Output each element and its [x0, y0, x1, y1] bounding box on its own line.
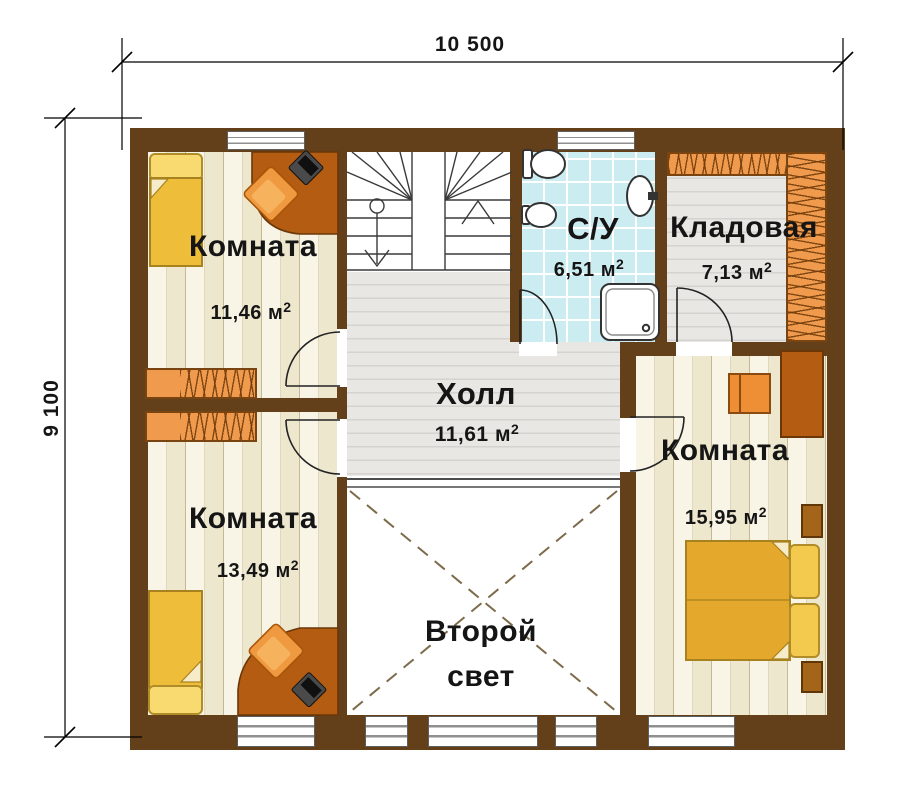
area-value: 15,95 м [685, 507, 759, 529]
door-bathroom [520, 290, 557, 344]
area-sup: 2 [511, 421, 519, 437]
area-sup: 2 [759, 504, 767, 520]
area-value: 11,61 м [435, 423, 511, 446]
area-value: 6,51 м [554, 259, 616, 281]
door-bottom-left-room [286, 420, 340, 474]
shower-tray-icon [601, 284, 659, 340]
area-value: 7,13 м [702, 262, 764, 284]
dimension-top-label: 10 500 [435, 33, 505, 57]
staircase [347, 152, 512, 270]
area-sup: 2 [291, 557, 299, 573]
blanket-fold [772, 642, 789, 659]
room-label-bedroom-right: Комната [661, 434, 789, 468]
area-sup: 2 [616, 256, 624, 272]
stair-start-circle [370, 199, 384, 213]
door-top-left-room [286, 332, 340, 386]
area-value: 11,46 м [210, 302, 283, 324]
stair-up-arrow [462, 201, 494, 224]
void-label-line1: Второй [425, 609, 537, 654]
room-label-bedroom-top-left: Комната [189, 230, 317, 264]
room-area-bathroom: 6,51 м2 [554, 256, 625, 282]
dimension-left-label: 9 100 [40, 379, 64, 437]
area-sup: 2 [764, 259, 772, 275]
room-label-void: Второй свет [425, 609, 537, 699]
room-label-bathroom: С/У [567, 211, 619, 247]
room-area-bedroom-top-left: 11,46 м2 [210, 299, 291, 325]
area-value: 13,49 м [217, 560, 291, 582]
area-sup: 2 [283, 299, 291, 315]
room-label-storage: Кладовая [670, 211, 818, 245]
door-storage [677, 288, 732, 342]
room-area-bedroom-bottom-left: 13,49 м2 [217, 557, 299, 583]
bidet-icon [522, 203, 556, 227]
blanket-fold [181, 661, 201, 682]
void-label-line2: свет [425, 654, 537, 699]
room-label-hall: Холл [436, 376, 516, 412]
room-label-bedroom-bottom-left: Комната [189, 502, 317, 536]
room-area-bedroom-right: 15,95 м2 [685, 504, 767, 530]
toilet-icon [523, 150, 565, 178]
blanket-fold [151, 179, 168, 198]
room-area-storage: 7,13 м2 [702, 259, 773, 285]
room-area-hall: 11,61 м2 [435, 421, 520, 447]
blanket-fold [772, 542, 789, 559]
floor-plan: 10 500 9 100 Комната 11,46 м2 Комната 13… [0, 0, 911, 802]
sink-icon [627, 176, 657, 216]
